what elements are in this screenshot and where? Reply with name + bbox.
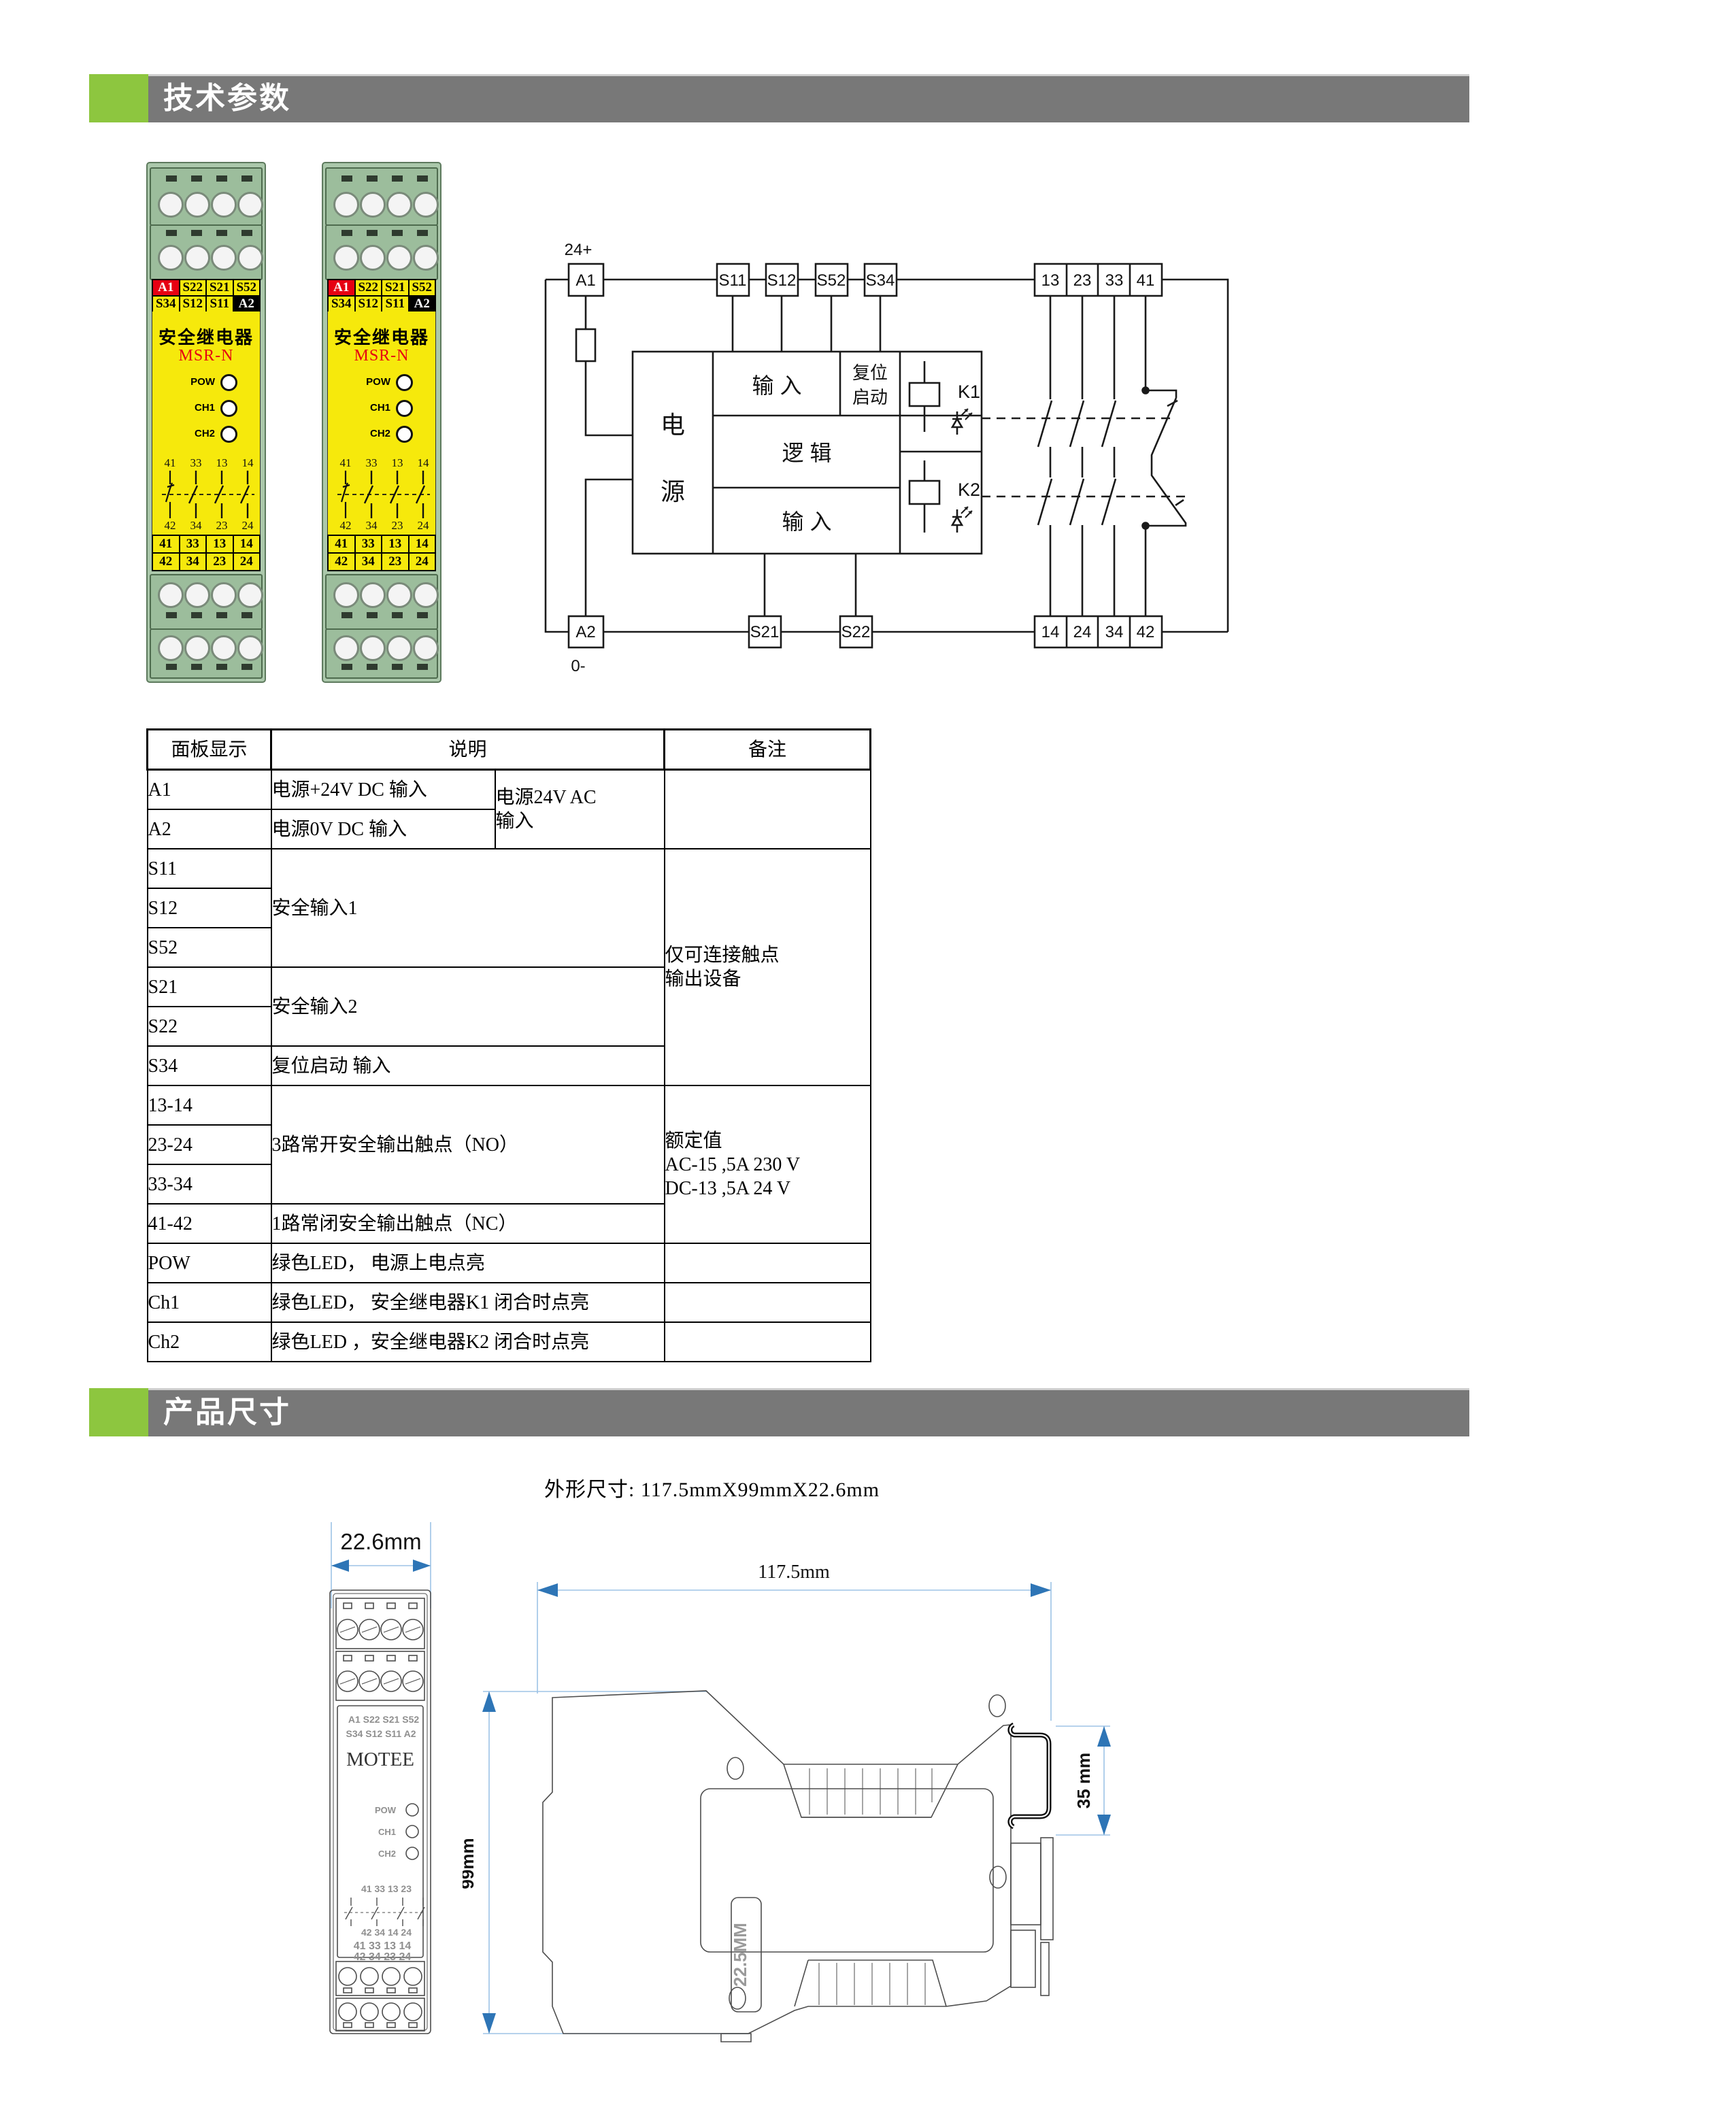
contact-arrangement-diagram: 41 33 13 14 42 34 23 24: [154, 456, 260, 532]
led-ch1: CH1: [328, 400, 435, 416]
svg-text:S11: S11: [719, 271, 747, 290]
svg-text:42: 42: [165, 519, 176, 532]
svg-text:13: 13: [392, 456, 403, 469]
ch1-led-icon: [396, 400, 413, 417]
terminal-block: [150, 574, 263, 630]
led-ch2: CH2: [328, 426, 435, 442]
terminal-block: [325, 167, 438, 226]
svg-text:13: 13: [1041, 271, 1060, 290]
svg-text:A1 S22 S21 S52: A1 S22 S21 S52: [348, 1714, 420, 1725]
svg-text:41: 41: [340, 456, 352, 469]
svg-text:41 33 13 23: 41 33 13 23: [361, 1883, 412, 1894]
svg-text:A2: A2: [575, 623, 595, 641]
terminal-block: [325, 574, 438, 630]
svg-text:输 入: 输 入: [782, 509, 832, 534]
section-title-tech: 技术参数: [163, 76, 291, 122]
overall-size-caption: 外形尺寸: 117.5mmX99mmX22.6mm: [544, 1472, 880, 1502]
contact-arrangement-diagram: 41 33 13 14 42 34 23 24: [329, 456, 435, 532]
svg-text:42 34 14 24: 42 34 14 24: [361, 1927, 412, 1938]
module-model: MSR-N: [328, 347, 435, 365]
table-row: Ch1绿色LED， 安全继电器K1 闭合时点亮: [148, 1283, 871, 1322]
section-title-size: 产品尺寸: [163, 1390, 291, 1436]
svg-text:S12: S12: [767, 271, 797, 290]
side-view-drawing: 117.5mm 99mm: [463, 1557, 1136, 2061]
svg-text:逻 辑: 逻 辑: [782, 441, 832, 465]
led-pow: POW: [152, 374, 260, 390]
module-title: 安全继电器: [152, 324, 260, 349]
terminal-block: [150, 224, 263, 280]
svg-text:S21: S21: [750, 623, 780, 641]
green-accent-block: [89, 74, 148, 122]
svg-text:99mm: 99mm: [463, 1838, 478, 1889]
svg-text:A1: A1: [575, 271, 595, 290]
svg-text:S22: S22: [841, 623, 871, 641]
table-row: S11安全输入1仅可连接触点 输出设备: [148, 849, 871, 888]
terminal-block: [325, 628, 438, 679]
terminal-label-strip-top: A1 S22 S21 S52 S34 S12 S11 A2: [152, 279, 261, 311]
ch2-led-icon: [396, 426, 413, 443]
svg-text:34: 34: [366, 519, 378, 532]
wiring-diagram: A1 S11 S12 S52 S34 13 23 33 41 A2 S21 S2…: [537, 228, 1238, 677]
module-title: 安全继电器: [328, 324, 435, 349]
svg-text:0-: 0-: [571, 657, 585, 675]
svg-text:13: 13: [216, 456, 228, 469]
svg-text:源: 源: [661, 477, 685, 505]
svg-text:34: 34: [1105, 623, 1124, 641]
pow-led-icon: [396, 374, 413, 391]
safety-relay-module: A1 S22 S21 S52 S34 S12 S11 A2 安全继电器 MSR-…: [146, 162, 266, 683]
terminal-spec-table: 面板显示 说明 备注 A1电源+24V DC 输入电源24V AC 输入 A2电…: [146, 728, 871, 1362]
svg-text:K2: K2: [958, 479, 980, 500]
svg-text:41 33 13 14: 41 33 13 14: [354, 1940, 412, 1952]
svg-text:33: 33: [1105, 271, 1124, 290]
svg-text:42: 42: [340, 519, 352, 532]
module-model: MSR-N: [152, 347, 260, 365]
svg-text:117.5mm: 117.5mm: [758, 1562, 830, 1583]
svg-text:23: 23: [392, 519, 403, 532]
svg-text:24: 24: [242, 519, 254, 532]
terminal-block: [150, 628, 263, 679]
table-row: 13-143路常开安全输出触点（NO）额定值 AC-15 ,5A 230 V D…: [148, 1085, 871, 1125]
svg-text:CH1: CH1: [378, 1827, 396, 1837]
datasheet-page: 技术参数 A1 S22 S21 S52 S34 S12 S11 A2: [0, 0, 1736, 2105]
terminal-label-strip-bottom: 41 33 13 14 42 34 23 24: [152, 535, 261, 571]
svg-text:S34 S12 S11 A2: S34 S12 S11 A2: [346, 1728, 416, 1739]
svg-text:电: 电: [661, 411, 685, 439]
svg-text:POW: POW: [375, 1805, 397, 1815]
terminal-label-strip-bottom: 41 33 13 14 42 34 23 24: [327, 535, 436, 571]
svg-text:复位: 复位: [852, 363, 888, 383]
svg-text:23: 23: [216, 519, 228, 532]
front-view-drawing: 22.6mm A1 S22 S21 S52 S34 S12 S11: [320, 1517, 463, 2054]
green-accent-block: [89, 1388, 148, 1436]
table-row: Ch2绿色LED ，安全继电器K2 闭合时点亮: [148, 1322, 871, 1362]
svg-text:14: 14: [242, 456, 254, 469]
module-front-panel: 安全继电器 MSR-N POW CH1 CH2 41 33 13 14 42 3…: [327, 311, 436, 535]
section-bar-size: 产品尺寸: [89, 1388, 1469, 1436]
svg-text:K1: K1: [958, 382, 980, 402]
svg-text:24+: 24+: [565, 241, 592, 259]
table-row: POW绿色LED， 电源上电点亮: [148, 1243, 871, 1283]
ch1-led-icon: [220, 400, 237, 417]
svg-text:启动: 启动: [852, 387, 888, 407]
svg-text:34: 34: [190, 519, 203, 532]
svg-text:24: 24: [1073, 623, 1092, 641]
terminal-block: [150, 167, 263, 226]
module-front-panel: 安全继电器 MSR-N POW CH1 CH2 41 33 13 14 42 3…: [152, 311, 261, 535]
svg-text:输 入: 输 入: [752, 373, 802, 398]
svg-text:42 34 23 24: 42 34 23 24: [354, 1951, 412, 1963]
svg-text:42: 42: [1137, 623, 1155, 641]
terminal-block: [325, 224, 438, 280]
led-ch1: CH1: [152, 400, 260, 416]
svg-text:S34: S34: [866, 271, 895, 290]
svg-text:33: 33: [366, 456, 378, 469]
led-ch2: CH2: [152, 426, 260, 442]
svg-text:23: 23: [1073, 271, 1092, 290]
led-pow: POW: [328, 374, 435, 390]
svg-text:MOTEE: MOTEE: [346, 1749, 414, 1770]
svg-text:24: 24: [418, 519, 430, 532]
svg-text:CH2: CH2: [378, 1849, 396, 1859]
svg-text:S52: S52: [817, 271, 846, 290]
ch2-led-icon: [220, 426, 237, 443]
svg-text:14: 14: [418, 456, 430, 469]
pow-led-icon: [220, 374, 237, 391]
terminal-label-strip-top: A1 S22 S21 S52 S34 S12 S11 A2: [327, 279, 436, 311]
table-header-row: 面板显示 说明 备注: [148, 730, 871, 770]
svg-text:35 mm: 35 mm: [1073, 1753, 1094, 1808]
safety-relay-module: A1 S22 S21 S52 S34 S12 S11 A2 安全继电器 MSR-…: [322, 162, 441, 683]
table-row: A1电源+24V DC 输入电源24V AC 输入: [148, 770, 871, 810]
svg-text:41: 41: [1137, 271, 1155, 290]
svg-text:41: 41: [165, 456, 176, 469]
svg-text:22.6mm: 22.6mm: [340, 1529, 421, 1554]
svg-text:22.5MM: 22.5MM: [730, 1923, 750, 1987]
section-bar-tech: 技术参数: [89, 74, 1469, 122]
svg-text:14: 14: [1041, 623, 1060, 641]
svg-text:33: 33: [190, 456, 202, 469]
